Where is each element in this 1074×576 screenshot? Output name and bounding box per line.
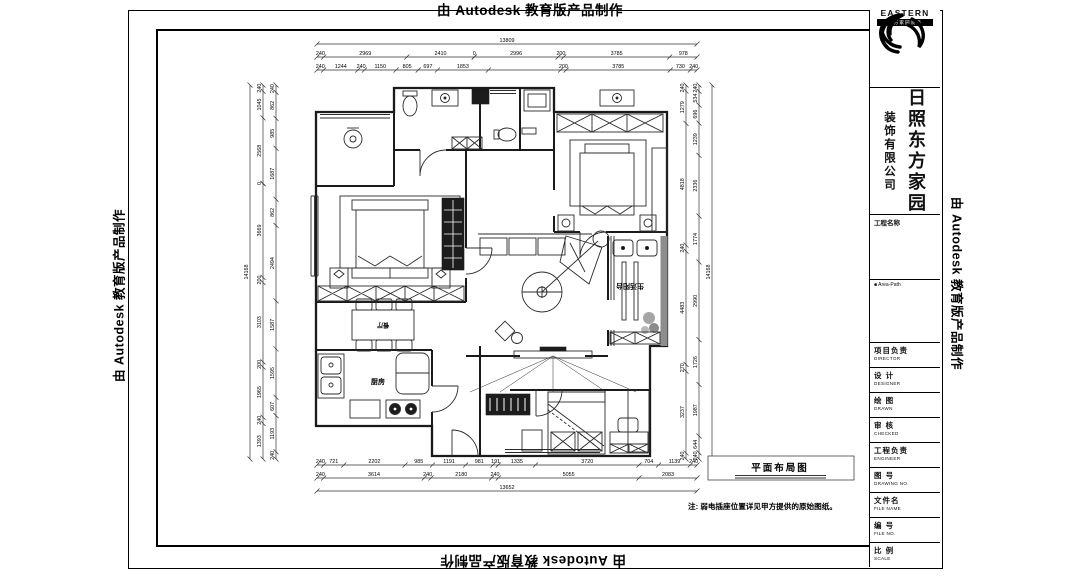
dim-label: 200 — [257, 360, 263, 369]
dim-label: 0 — [257, 182, 263, 185]
field-zh: 审 核 — [870, 418, 940, 431]
master-wardrobe — [442, 198, 464, 270]
dim-label: 240 — [316, 51, 325, 57]
dim-label: 1687 — [270, 168, 276, 180]
dim-chain-left-row3: 24086298516878622494158715956071193240 — [270, 83, 279, 462]
dim-chain-top-total: 13809 — [315, 38, 700, 46]
dim-label: 696 — [693, 110, 699, 119]
dim-label: 14168 — [706, 265, 712, 280]
master-bed — [330, 196, 460, 288]
dim-label: 1239 — [693, 133, 699, 145]
field-en: SCALE — [870, 556, 940, 561]
dim-label: 978 — [679, 51, 688, 57]
windows — [311, 91, 614, 453]
dim-label: 4818 — [680, 178, 686, 190]
dim-label: 200 — [559, 64, 568, 70]
dim-label: 1774 — [693, 233, 699, 245]
bedroom3 — [486, 392, 648, 454]
field-area: ■ Area-Path — [870, 280, 940, 343]
dim-label: 240 — [316, 472, 325, 478]
dim-label: 240 — [423, 472, 432, 478]
field-en: ENGINEER — [870, 456, 940, 461]
dim-label: 240 — [257, 84, 263, 93]
dim-chain-bottom-total: 13652 — [315, 485, 700, 493]
dim-label: 3103 — [257, 316, 263, 328]
dim-label: 1191 — [443, 459, 455, 465]
dim-label: 1279 — [680, 101, 686, 113]
room-label-kitchen: 厨房 — [371, 377, 385, 386]
bathroom2-fixtures — [600, 90, 634, 106]
dim-label: 240 — [270, 451, 276, 460]
drawing-note: 注: 弱电插座位置详见甲方提供的原始图纸。 — [688, 501, 837, 511]
field-zh: 比 例 — [870, 543, 940, 556]
company-main: 日照东方家园 — [903, 88, 929, 214]
dim-label: 704 — [644, 459, 653, 465]
bedroom2 — [557, 114, 663, 231]
dim-label: 1853 — [457, 64, 469, 70]
dim-label: 3237 — [680, 406, 686, 418]
dim-label: 3669 — [257, 224, 263, 236]
eastern-logo-icon — [870, 10, 930, 58]
dim-label: 2410 — [435, 51, 447, 57]
dim-label: 0 — [473, 51, 476, 57]
dim-label: 3785 — [612, 64, 624, 70]
field-zh: 工程负责 — [870, 443, 940, 456]
dim-chain-bottom-row1: 2407212202985119198119113353720704113924… — [315, 459, 700, 467]
title-block: EASTERN 东方家园装饰 装饰有限公司 日照东方家园 工程名称 ■ Area… — [869, 10, 940, 567]
dim-label: 240 — [316, 459, 325, 465]
dim-label: 1335 — [511, 459, 523, 465]
drawing-title-block: 平面布局图 — [708, 456, 854, 480]
drawing-title: 平面布局图 — [751, 462, 809, 474]
dim-label: 985 — [414, 459, 423, 465]
dim-label: 2990 — [693, 295, 699, 307]
dim-label: 13652 — [500, 485, 515, 491]
field-file-no: 编 号 FILE NO. — [870, 518, 940, 543]
dim-label: 240 — [693, 451, 699, 460]
dim-label: 697 — [423, 64, 432, 70]
dim-label: 240 — [357, 64, 366, 70]
dim-label: 2180 — [455, 472, 467, 478]
field-en: DRAWING NO. — [870, 481, 940, 486]
field-en: DESIGNER — [870, 381, 940, 386]
dim-label: 2336 — [693, 180, 699, 192]
field-zh: 图 号 — [870, 468, 940, 481]
dim-chain-top-row2: 24029692410029962003785978 — [315, 51, 700, 59]
field-en: FILE NAME — [870, 506, 940, 511]
dim-label: 240 — [257, 416, 263, 425]
field-zh: 项目负责 — [870, 343, 940, 356]
field-project-name: 工程名称 — [870, 215, 940, 280]
dim-label: 13809 — [500, 38, 515, 44]
dim-chain-left-total: 14168 — [244, 83, 253, 462]
room-label-dining: 餐厅 — [377, 321, 390, 329]
dim-chain-top-row3: 2401244240115080569718532003785730240 — [315, 64, 700, 72]
dim-label: 240 — [680, 244, 686, 253]
field-checked: 审 核 CHECKED — [870, 418, 940, 443]
project-name-label: 工程名称 — [870, 215, 940, 227]
dim-label: 240 — [693, 84, 699, 93]
dim-label: 730 — [676, 64, 685, 70]
dim-chain-right-total: 14168 — [706, 83, 715, 462]
dim-label: 2494 — [270, 257, 276, 269]
dim-label: 607 — [270, 402, 276, 411]
dim-label: 862 — [270, 208, 276, 217]
dim-label: 1193 — [270, 428, 276, 440]
field-zh: 文件名 — [870, 493, 940, 506]
company-logo: EASTERN 东方家园装饰 — [870, 10, 940, 88]
dim-label: 1045 — [257, 99, 263, 111]
dim-label: 2568 — [257, 145, 263, 157]
field-drawing-no: 图 号 DRAWING NO. — [870, 468, 940, 493]
dim-label: 200 — [257, 275, 263, 284]
dim-label: 644 — [693, 440, 699, 449]
field-director: 项目负责 DIRECTOR — [870, 343, 940, 368]
dim-label: 3785 — [611, 51, 623, 57]
dim-label: 2969 — [359, 51, 371, 57]
dim-chain-left-row2: 2401045256803669200310320019652401393 — [257, 83, 266, 462]
dim-label: 4483 — [680, 302, 686, 314]
dim-label: 1595 — [270, 367, 276, 379]
field-en: DRAWN — [870, 406, 940, 411]
field-zh: 绘 图 — [870, 393, 940, 406]
dim-label: 240 — [270, 84, 276, 93]
dim-label: 981 — [475, 459, 484, 465]
dim-chain-right-row2: 240534696123923361774299017261987644240 — [693, 83, 702, 462]
dim-label: 1244 — [335, 64, 347, 70]
dim-label: 1150 — [374, 64, 386, 70]
dim-chain-right-row3: 2401279481824044832703237240 — [680, 83, 689, 462]
company-sub: 装饰有限公司 — [881, 111, 897, 192]
dim-label: 1726 — [693, 356, 699, 368]
dim-label: 5055 — [563, 472, 575, 478]
field-file-name: 文件名 FILE NAME — [870, 493, 940, 518]
balcony — [610, 240, 660, 344]
dim-label: 1393 — [257, 435, 263, 447]
dim-label: 3720 — [581, 459, 593, 465]
dim-label: 14168 — [244, 265, 250, 280]
field-zh: 编 号 — [870, 518, 940, 531]
dim-label: 2083 — [662, 472, 674, 478]
dim-label: 985 — [270, 129, 276, 138]
dim-label: 240 — [490, 472, 499, 478]
dim-label: 534 — [693, 94, 699, 103]
field-engineer: 工程负责 ENGINEER — [870, 443, 940, 468]
field-drawn: 绘 图 DRAWN — [870, 393, 940, 418]
dim-label: 270 — [680, 363, 686, 372]
dim-label: 3614 — [368, 472, 380, 478]
field-designer: 设 计 DESIGNER — [870, 368, 940, 393]
bathroom-fixtures — [403, 89, 550, 149]
dim-label: 240 — [689, 64, 698, 70]
field-zh: 设 计 — [870, 368, 940, 381]
dim-label: 191 — [491, 459, 500, 465]
dim-label: 2202 — [368, 459, 380, 465]
dim-label: 240 — [680, 451, 686, 460]
room-label-balcony: 生活阳台 — [616, 282, 644, 291]
company-name: 装饰有限公司 日照东方家园 — [870, 88, 940, 215]
field-en: CHECKED — [870, 431, 940, 436]
dim-label: 1587 — [270, 319, 276, 331]
dim-label: 805 — [403, 64, 412, 70]
dim-label: 862 — [270, 101, 276, 110]
dim-label: 2996 — [510, 51, 522, 57]
field-scale: 比 例 SCALE — [870, 543, 940, 568]
area-label: ■ Area-Path — [870, 280, 940, 288]
field-en: FILE NO. — [870, 531, 940, 536]
dim-label: 1987 — [693, 404, 699, 416]
field-en: DIRECTOR — [870, 356, 940, 361]
dim-chain-bottom-row2: 2403614240218024050552083 — [315, 472, 700, 480]
dim-label: 240 — [680, 84, 686, 93]
dim-label: 240 — [316, 64, 325, 70]
dim-label: 721 — [329, 459, 338, 465]
dim-label: 1139 — [669, 459, 681, 465]
dim-label: 1965 — [257, 386, 263, 398]
side-table — [344, 128, 362, 148]
dim-label: 200 — [556, 51, 565, 57]
